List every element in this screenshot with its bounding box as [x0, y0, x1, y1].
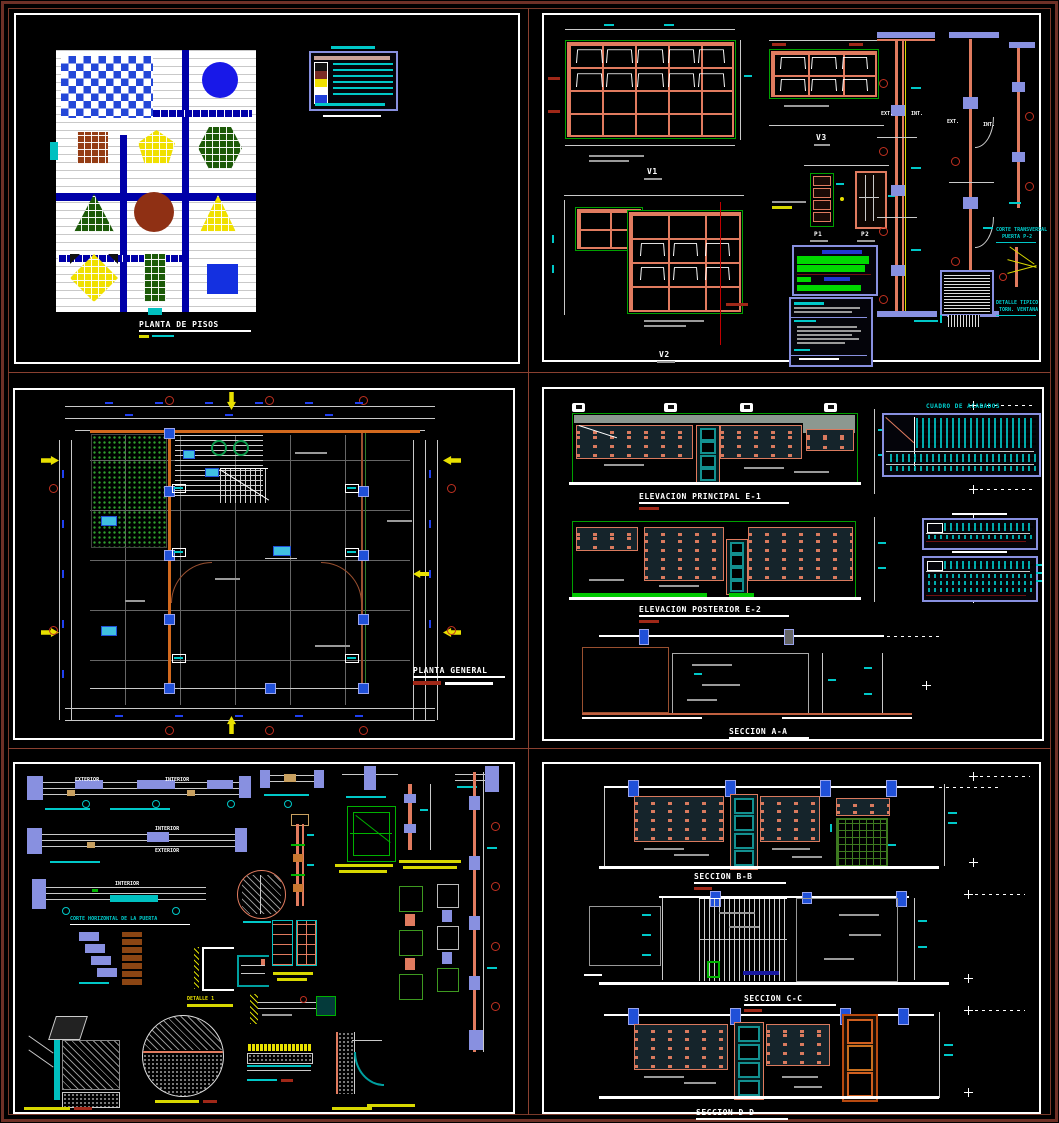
yellow-diamond	[70, 254, 118, 302]
legend-swatch-column	[314, 62, 328, 104]
label-exterior-r1: EXTERIOR	[75, 777, 99, 783]
label-p2: P2	[861, 231, 869, 238]
elev2-title: ELEVACION POSTERIOR E-2	[639, 605, 761, 614]
label-int-1: INT.	[911, 111, 923, 117]
detail-cross-assembly	[250, 992, 336, 1026]
detail-sandwich	[247, 1044, 311, 1074]
window-detail-v3	[769, 49, 879, 99]
floor-legend	[309, 51, 398, 111]
detail-top-mid-1	[254, 768, 336, 812]
small-table-1	[922, 518, 1038, 550]
fixture-1	[101, 516, 117, 526]
detail-step	[194, 947, 236, 993]
door-arc-left	[171, 562, 212, 603]
window-detail-v1	[565, 40, 736, 139]
detalle-tipico-title: DETALLE TIPICO	[996, 300, 1038, 306]
detail-channel	[237, 955, 269, 987]
label-p1: P1	[814, 231, 822, 238]
green-hexagon	[198, 127, 242, 169]
wall-section-1: EXT. INT.	[877, 27, 942, 317]
sheet-secciones: SECCION B-B SECCION C-C	[542, 762, 1041, 1114]
detail-grid-pair	[272, 920, 316, 968]
detalle1-caption: DETALLE 1	[187, 996, 214, 1002]
door-arc-right	[321, 562, 362, 603]
label-ext-2: EXT.	[947, 119, 959, 125]
detail-vert-right	[400, 784, 442, 854]
blue-square	[207, 264, 238, 294]
detail-floor-circle	[142, 1015, 224, 1097]
label-v2: V2	[659, 350, 670, 359]
detail-jamb-row2	[27, 824, 249, 858]
label-exterior-r2: EXTERIOR	[155, 848, 179, 854]
garden-area	[91, 434, 167, 548]
wall-top	[90, 430, 420, 433]
label-ext-1: EXT.	[881, 111, 893, 117]
cad-drawing-page: { "page": {"background":"#000000","frame…	[0, 0, 1059, 1123]
wall-right	[361, 433, 363, 690]
wall-right-green	[365, 433, 366, 690]
detail-column-chain-2	[435, 884, 463, 1004]
detail-wall-curve	[332, 1032, 392, 1110]
wall-left	[168, 433, 171, 690]
sheet-planta-general: PLANTA GENERAL	[13, 388, 515, 740]
yellow-pentagon	[138, 130, 175, 164]
detail-jamb-row1	[27, 774, 252, 806]
elevacion-posterior	[569, 517, 889, 612]
sheet-detalles: EXTERIOR INTERIOR INTERIOR EXTERIOR INTE…	[13, 762, 515, 1114]
panel-separator-h2	[8, 748, 1051, 749]
schedule-box-green	[792, 245, 878, 296]
cuadro-acabados-table	[882, 413, 1041, 477]
label-interior-r3: INTERIOR	[115, 881, 139, 887]
elev1-title: ELEVACION PRINCIPAL E-1	[639, 492, 761, 501]
label-interior-r1: INTERIOR	[165, 777, 189, 783]
detail-rebar-ladder	[122, 932, 142, 987]
seccion-bb	[544, 764, 1039, 880]
label-v3: V3	[816, 133, 827, 142]
fixture-center	[273, 546, 291, 556]
small-table-2	[922, 556, 1038, 602]
section-arrow-left-1	[41, 456, 59, 465]
sheet1-title: PLANTA DE PISOS	[139, 320, 219, 329]
sill-hatch-detail-2	[948, 315, 980, 327]
sheet3-title: PLANTA GENERAL	[413, 666, 487, 675]
secBB-title: SECCION B-B	[694, 872, 752, 881]
section-arrow-top	[227, 392, 236, 410]
secAA-title: SECCION A-A	[729, 727, 787, 736]
blue-circle	[202, 62, 238, 98]
section-arrow-bottom	[227, 716, 236, 734]
brown-grid-square	[77, 132, 108, 164]
detail-mullion-vert	[287, 814, 314, 909]
stair-area	[220, 468, 268, 503]
cuadro-acabados-title: CUADRO DE ACABADOS	[926, 403, 1000, 410]
door-mark-bottom	[148, 308, 162, 315]
detail-column-chain-1	[397, 886, 427, 1004]
label-int-2: INT.	[983, 122, 995, 128]
door-mark-left	[50, 142, 58, 160]
detalle-tipico-sub: TORN. VENTANA	[999, 307, 1038, 313]
detail-masonry-left	[24, 1014, 136, 1110]
panel-separator-vertical	[528, 8, 529, 1115]
detail-tall-strip	[467, 772, 507, 1062]
checkerboard-tile	[61, 56, 153, 118]
detail-circle-viga	[237, 870, 286, 919]
seccion-aa	[582, 629, 942, 724]
label-interior-r2: INTERIOR	[155, 826, 179, 832]
sheet-planta-de-pisos: PLANTA DE PISOS	[14, 13, 520, 364]
notes-box	[789, 297, 873, 367]
elevacion-principal	[569, 399, 889, 499]
section-arrow-right-1	[443, 456, 461, 465]
corte-transversal-sub: PUERTA P-2	[1002, 234, 1032, 240]
detail-top-mid-2	[342, 766, 400, 808]
secCC-title: SECCION C-C	[744, 994, 802, 1003]
label-v1: V1	[647, 167, 658, 176]
sheet-ventanas-puertas: V1 V3 V2 P1 P2	[542, 13, 1041, 362]
green-grid-rect	[144, 254, 166, 302]
secDD-title: SECCION D-D	[696, 1108, 754, 1117]
window-detail-v2	[627, 210, 743, 314]
corte-transversal-title: CORTE TRANSVERSAL	[996, 227, 1047, 233]
section-arrow-mid	[413, 570, 429, 578]
torn-detail	[999, 247, 1037, 287]
seccion-dd	[544, 1006, 1039, 1106]
sheet-elevaciones: ELEVACION PRINCIPAL E-1 ELEVACION POSTER…	[542, 387, 1044, 741]
corte-horizontal-caption: CORTE HORIZONTAL DE LA PUERTA	[70, 916, 157, 922]
brown-circle	[134, 192, 174, 232]
hinge-mark	[840, 197, 844, 201]
sill-hatch-detail	[940, 270, 994, 316]
detail-platina-frame	[347, 806, 396, 862]
floor-plan	[56, 50, 256, 312]
door-detail-p1	[810, 173, 834, 227]
panel-separator-h1	[8, 372, 1051, 373]
seccion-cc	[544, 890, 1039, 990]
fixture-2	[101, 626, 117, 636]
